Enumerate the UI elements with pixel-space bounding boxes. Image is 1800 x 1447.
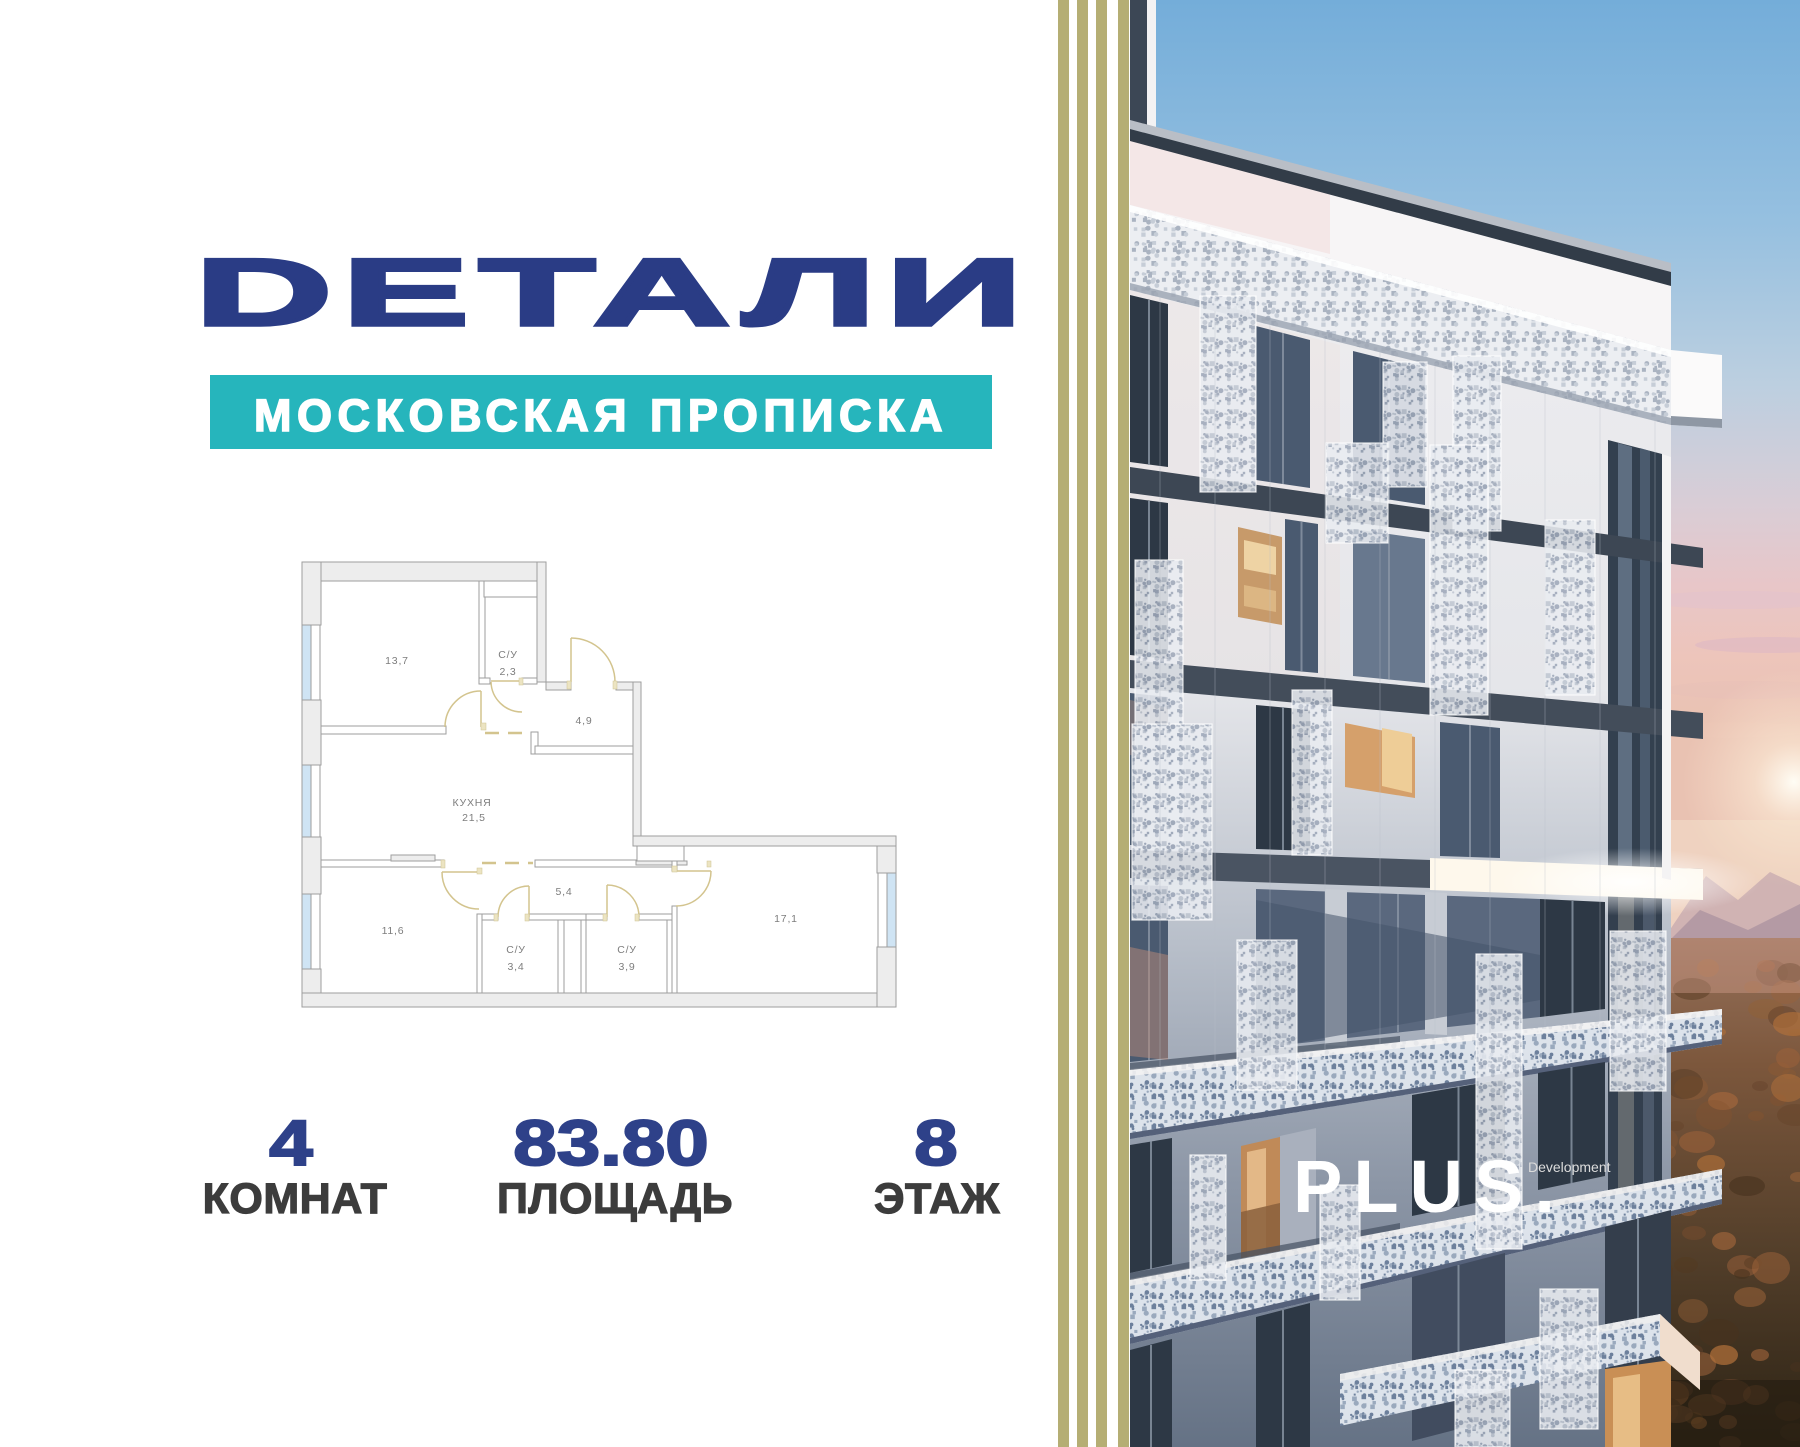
svg-text:КУХНЯ: КУХНЯ bbox=[452, 797, 491, 809]
svg-text:5,4: 5,4 bbox=[556, 886, 573, 898]
svg-text:11,6: 11,6 bbox=[382, 925, 405, 937]
svg-text:2,3: 2,3 bbox=[500, 666, 517, 678]
svg-text:3,4: 3,4 bbox=[508, 961, 525, 973]
svg-text:PLUS.: PLUS. bbox=[1293, 1145, 1566, 1228]
svg-text:21,5: 21,5 bbox=[462, 812, 486, 824]
svg-text:С/У: С/У bbox=[617, 944, 637, 956]
svg-text:4,9: 4,9 bbox=[576, 715, 593, 727]
svg-text:13,7: 13,7 bbox=[385, 655, 409, 667]
svg-text:Development: Development bbox=[1528, 1159, 1611, 1175]
svg-text:С/У: С/У bbox=[498, 649, 518, 661]
svg-text:С/У: С/У bbox=[506, 944, 526, 956]
svg-text:3,9: 3,9 bbox=[619, 961, 636, 973]
svg-text:17,1: 17,1 bbox=[774, 913, 798, 925]
